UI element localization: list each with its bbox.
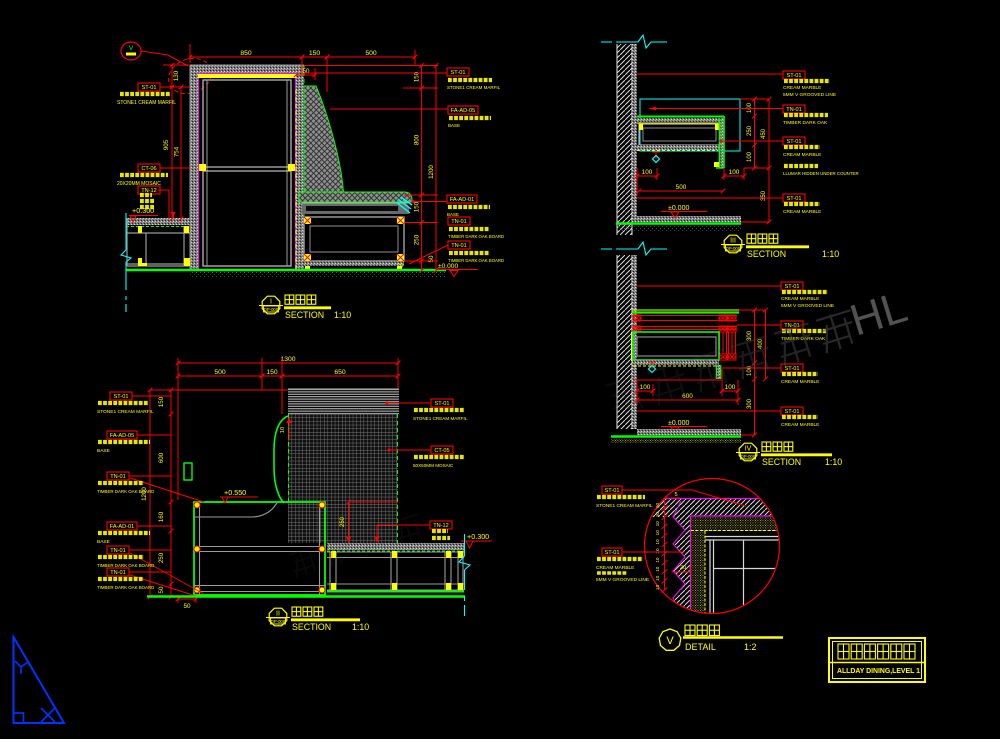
svg-text:ST-01: ST-01 (787, 196, 802, 202)
svg-text:50: 50 (183, 603, 191, 610)
svg-text:TIMBER DARK OAK BOARD: TIMBER DARK OAK BOARD (97, 489, 154, 494)
svg-text:250: 250 (158, 552, 165, 563)
svg-text:100: 100 (747, 102, 753, 113)
svg-text:DP-008: DP-008 (271, 619, 286, 624)
svg-text:+0.550: +0.550 (224, 488, 246, 497)
svg-text:V: V (129, 45, 134, 52)
svg-text:100: 100 (642, 169, 653, 176)
svg-text:ALLDAY DINING,LEVEL 1: ALLDAY DINING,LEVEL 1 (837, 668, 920, 675)
svg-text:TN-01: TN-01 (110, 570, 126, 576)
svg-text:10: 10 (655, 584, 660, 590)
svg-text:CREAM MARBLE: CREAM MARBLE (596, 565, 634, 571)
svg-text:1:2: 1:2 (744, 642, 757, 652)
svg-text:100: 100 (747, 151, 753, 162)
svg-text:ST-01: ST-01 (142, 85, 157, 91)
svg-text:ST-01: ST-01 (785, 366, 800, 372)
svg-text:TN-01: TN-01 (451, 219, 467, 225)
svg-text:250: 250 (414, 234, 421, 245)
svg-text:V: V (666, 635, 674, 647)
svg-text:CREAM MARBLE: CREAM MARBLE (781, 422, 819, 428)
svg-text:ST-01: ST-01 (451, 70, 466, 76)
svg-text:TIMBER DARK OAK BOARD: TIMBER DARK OAK BOARD (97, 585, 154, 590)
svg-text:20: 20 (397, 264, 403, 270)
svg-text:TN-01: TN-01 (451, 243, 467, 249)
svg-text:ST-01: ST-01 (605, 550, 620, 556)
svg-text:ST-01: ST-01 (787, 73, 802, 79)
svg-text:FA-AD-05: FA-AD-05 (110, 433, 135, 439)
svg-text:TIMBER DARK OAK BOARD: TIMBER DARK OAK BOARD (448, 258, 504, 263)
svg-text:300: 300 (747, 330, 753, 341)
svg-text:10: 10 (655, 530, 660, 536)
svg-text:TN-12: TN-12 (433, 523, 449, 529)
svg-text:±0.000: ±0.000 (668, 420, 689, 427)
svg-text:I: I (270, 299, 272, 306)
svg-text:500: 500 (676, 184, 687, 191)
svg-text:130: 130 (173, 70, 180, 81)
svg-text:CT-05: CT-05 (434, 448, 449, 454)
svg-text:5MM V GROOVED LINE: 5MM V GROOVED LINE (781, 303, 834, 309)
svg-text:STONE1 CREAM MARFIL: STONE1 CREAM MARFIL (117, 100, 176, 106)
svg-text:LLUMAR HIDDEN UNDER COUNTER: LLUMAR HIDDEN UNDER COUNTER (783, 171, 859, 176)
svg-text:ST-01: ST-01 (435, 401, 450, 407)
svg-text:SECTION: SECTION (762, 457, 801, 467)
svg-text:DP-008: DP-008 (264, 307, 279, 312)
svg-text:350: 350 (761, 190, 767, 201)
svg-text:250: 250 (747, 125, 753, 136)
svg-text:CREAM MARBLE: CREAM MARBLE (781, 379, 819, 385)
svg-text:DP-008: DP-008 (726, 246, 741, 251)
svg-text:5MM V GROOVED LINE: 5MM V GROOVED LINE (783, 92, 836, 98)
svg-text:650: 650 (334, 369, 346, 376)
svg-text:SECTION: SECTION (285, 310, 324, 320)
svg-text:300: 300 (747, 398, 753, 409)
svg-text:TN-01: TN-01 (110, 548, 126, 554)
svg-text:SECTION: SECTION (747, 249, 786, 259)
svg-text:±0.000: ±0.000 (438, 263, 458, 270)
svg-text:250: 250 (340, 516, 346, 527)
svg-text:ST-01: ST-01 (605, 488, 620, 494)
svg-text:TN-01: TN-01 (110, 474, 126, 480)
svg-text:TN-01: TN-01 (786, 107, 802, 113)
svg-text:150: 150 (158, 396, 165, 407)
svg-text:500: 500 (214, 369, 226, 376)
svg-text:BASE: BASE (448, 123, 460, 128)
svg-text:500: 500 (365, 50, 377, 57)
svg-text:TIMBER DARK OAK BOARD: TIMBER DARK OAK BOARD (448, 234, 504, 239)
svg-text:1200: 1200 (428, 165, 435, 179)
svg-text:905: 905 (163, 139, 170, 150)
svg-text:IV: IV (745, 446, 752, 453)
svg-text:450: 450 (761, 128, 767, 139)
svg-text:II: II (276, 611, 280, 618)
svg-text:FA-AD-01: FA-AD-01 (450, 197, 475, 203)
svg-text:BASE: BASE (97, 448, 110, 454)
svg-text:10: 10 (655, 521, 660, 527)
svg-text:10: 10 (655, 566, 660, 572)
svg-text:10: 10 (280, 427, 286, 433)
svg-text:ST-01: ST-01 (785, 409, 800, 415)
svg-text:CREAM MARBLE: CREAM MARBLE (783, 209, 821, 215)
svg-text:1:10: 1:10 (334, 310, 351, 320)
svg-text:TIMBER DARK OAK BOARD: TIMBER DARK OAK BOARD (97, 563, 154, 568)
svg-text:STONE1 CREAM MARFIL: STONE1 CREAM MARFIL (413, 416, 468, 421)
svg-text:10: 10 (655, 575, 660, 581)
svg-text:1:10: 1:10 (825, 457, 842, 467)
svg-text:STONE1 CREAM MARFIL: STONE1 CREAM MARFIL (596, 503, 653, 509)
svg-text:CREAM MARBLE: CREAM MARBLE (781, 296, 819, 302)
svg-text:±0.000: ±0.000 (668, 205, 689, 212)
svg-text:CREAM MARBLE: CREAM MARBLE (783, 85, 821, 91)
svg-text:100: 100 (729, 169, 740, 176)
svg-text:ST-01: ST-01 (785, 284, 800, 290)
svg-text:FA-AD-01: FA-AD-01 (110, 524, 135, 530)
svg-text:150: 150 (309, 50, 321, 57)
svg-text:STONE1 CREAM MARFIL: STONE1 CREAM MARFIL (447, 85, 501, 90)
svg-text:CREAM MARBLE: CREAM MARBLE (783, 152, 821, 158)
svg-text:10: 10 (655, 512, 660, 518)
svg-text:ST-01: ST-01 (114, 394, 129, 400)
svg-text:10: 10 (655, 503, 660, 509)
svg-text:10: 10 (655, 557, 660, 563)
svg-text:160: 160 (158, 511, 165, 522)
svg-text:50: 50 (158, 586, 165, 593)
svg-text:150: 150 (414, 201, 421, 212)
svg-text:BASE: BASE (97, 539, 110, 545)
svg-text:600: 600 (158, 452, 165, 463)
svg-text:100: 100 (725, 384, 736, 391)
svg-text:1:10: 1:10 (352, 622, 369, 632)
svg-text:5: 5 (674, 492, 677, 498)
svg-text:850: 850 (240, 50, 252, 57)
svg-text:FA-AD-05: FA-AD-05 (451, 108, 476, 114)
svg-text:DETAIL: DETAIL (685, 642, 716, 652)
svg-text:STONE1 CREAM MARFIL: STONE1 CREAM MARFIL (97, 409, 154, 415)
svg-text:III: III (730, 238, 736, 245)
svg-text:754: 754 (174, 146, 181, 157)
svg-text:150: 150 (266, 369, 278, 376)
svg-text:800: 800 (414, 134, 421, 145)
svg-text:1:10: 1:10 (822, 249, 839, 259)
svg-text:CT-06: CT-06 (141, 166, 156, 172)
svg-text:BASE: BASE (447, 212, 459, 217)
svg-text:1300: 1300 (280, 356, 295, 363)
svg-text:ST-01: ST-01 (787, 139, 802, 145)
svg-text:SECTION: SECTION (292, 622, 331, 632)
svg-text:+0.300: +0.300 (467, 532, 489, 541)
svg-text:20: 20 (680, 565, 686, 571)
svg-text:DP-008: DP-008 (741, 454, 756, 459)
svg-text:50X50MM MOSAIC: 50X50MM MOSAIC (413, 463, 454, 468)
svg-text:10: 10 (655, 539, 660, 545)
svg-text:TIMBER DARK OAK: TIMBER DARK OAK (783, 120, 828, 126)
svg-text:5MM V GROOVED LINE: 5MM V GROOVED LINE (596, 577, 649, 583)
svg-text:50: 50 (303, 68, 310, 75)
svg-text:10: 10 (655, 548, 660, 554)
